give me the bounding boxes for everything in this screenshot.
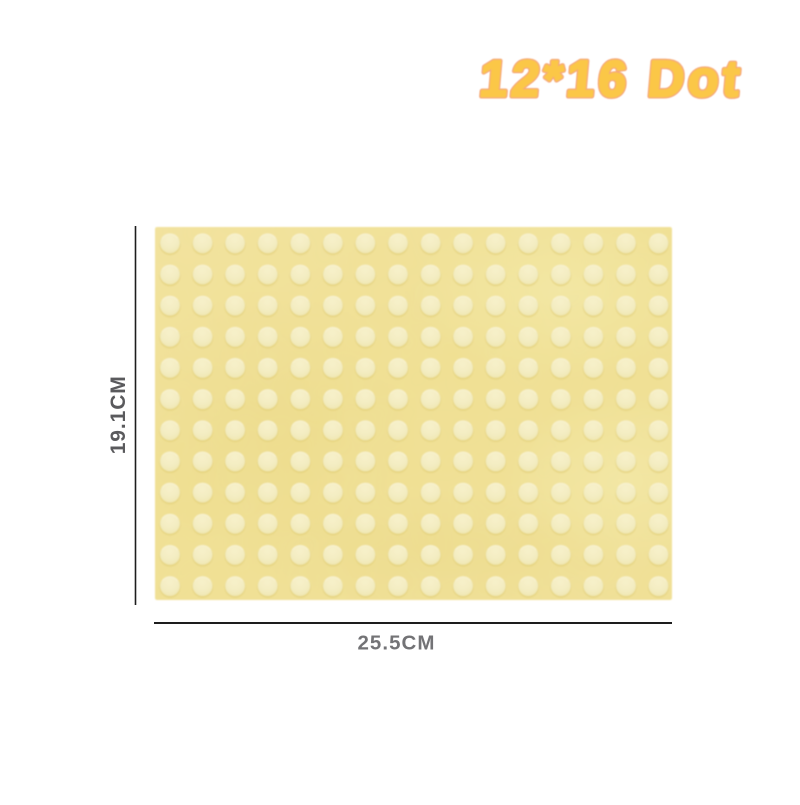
svg-text:25.5CM: 25.5CM [357, 632, 435, 655]
svg-text:12*16 Dot: 12*16 Dot [477, 50, 745, 107]
svg-text:19.1CM: 19.1CM [107, 375, 130, 454]
